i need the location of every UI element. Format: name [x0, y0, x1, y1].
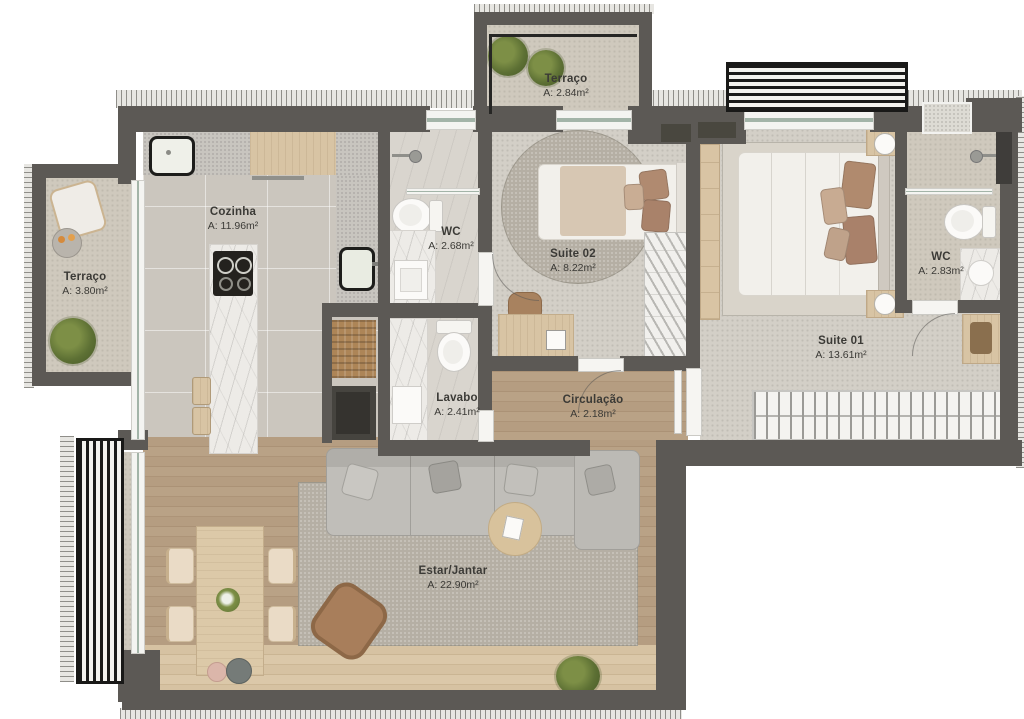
island-stool — [192, 407, 211, 435]
laptop — [546, 330, 566, 350]
cooktop-burner — [219, 277, 233, 291]
luggage — [970, 322, 992, 354]
cooktop-burner — [217, 257, 234, 274]
room-name: WC — [428, 226, 474, 240]
room-label-lavabo: Lavabo A: 2.41m² — [434, 392, 480, 418]
shower-head — [970, 150, 983, 163]
room-area: A: 3.80m² — [62, 285, 108, 297]
sofa-pillow — [583, 463, 616, 496]
pouf — [226, 658, 252, 684]
wall — [322, 303, 332, 443]
wall — [895, 300, 912, 313]
terrace-railing — [489, 34, 637, 37]
wall — [656, 440, 686, 710]
shower-glass — [905, 188, 993, 195]
pouf — [207, 662, 227, 682]
headboard — [878, 152, 890, 298]
entry-niche — [661, 124, 691, 142]
room-label-wc-suite02: WC A: 2.68m² — [428, 226, 474, 252]
dining-chair — [166, 548, 194, 584]
shower-glass — [406, 188, 480, 195]
toilet-tank — [982, 206, 996, 238]
cooktop-burner — [235, 257, 252, 274]
coffee-cup — [68, 234, 75, 241]
room-label-cozinha: Cozinha A: 11.96m² — [208, 206, 259, 232]
room-name: Lavabo — [434, 392, 480, 406]
exterior-hatch — [60, 436, 74, 682]
pergola-louver — [726, 62, 908, 112]
wall — [122, 690, 680, 710]
room-area: A: 2.41m² — [434, 406, 480, 418]
wall — [378, 303, 490, 318]
terrace-plant — [50, 318, 96, 364]
wall — [32, 164, 46, 386]
dining-chair — [268, 606, 296, 642]
toilet-bowl-inner — [443, 340, 463, 364]
side-louver-panel — [76, 438, 124, 684]
table-lamp — [874, 133, 896, 155]
wicker-cabinet — [330, 320, 376, 378]
wall — [662, 440, 1022, 466]
sliding-glass-door — [131, 452, 145, 654]
cooktop-burner — [237, 277, 251, 291]
wall — [686, 140, 700, 374]
shower-head — [409, 150, 422, 163]
terrace-plant — [488, 36, 528, 76]
wall — [378, 128, 390, 443]
wall — [486, 356, 578, 371]
island-stool — [192, 377, 211, 405]
table-lamp — [874, 293, 896, 315]
entry-niche — [698, 122, 736, 138]
wall-niche — [996, 132, 1012, 184]
room-name: WC — [918, 251, 964, 265]
window — [426, 110, 476, 130]
wall — [895, 127, 907, 312]
kitchen-sink — [149, 136, 195, 176]
lavabo-basin — [392, 386, 422, 424]
room-label-circulacao: Circulação A: 2.18m² — [563, 394, 624, 420]
suite01-wardrobe-panel — [700, 144, 720, 320]
room-label-terraco-top: Terraço A: 2.84m² — [543, 73, 589, 99]
room-name: Suite 01 — [815, 335, 866, 349]
wall-shelf — [252, 176, 304, 180]
room-name: Suite 02 — [550, 248, 596, 262]
wall — [474, 12, 487, 124]
door-leaf — [674, 370, 682, 434]
sliding-glass-door — [131, 180, 145, 440]
bed-pillow — [641, 199, 672, 233]
room-label-suite02: Suite 02 A: 8.22m² — [550, 248, 596, 274]
window — [744, 110, 874, 130]
suite02-wardrobe — [644, 232, 692, 362]
table-flowers — [216, 588, 240, 612]
room-name: Terraço — [543, 73, 589, 87]
wall — [478, 302, 492, 412]
room-area: A: 2.84m² — [543, 87, 589, 99]
door-opening — [478, 410, 494, 442]
room-area: A: 22.90m² — [419, 579, 488, 591]
wall — [378, 440, 590, 456]
room-area: A: 2.18m² — [563, 408, 624, 420]
room-area: A: 2.68m² — [428, 240, 474, 252]
side-table — [52, 228, 82, 258]
bed-throw — [560, 166, 626, 236]
room-name: Cozinha — [208, 206, 259, 220]
sofa-pillow — [503, 463, 539, 497]
room-area: A: 13.61m² — [815, 349, 866, 361]
coffee-cup — [58, 236, 65, 243]
room-label-wc-suite01: WC A: 2.83m² — [918, 251, 964, 277]
toilet-bowl-inner — [399, 204, 422, 226]
sofa-pillow — [428, 460, 463, 495]
toilet-bowl-inner — [951, 210, 974, 232]
door-opening — [686, 368, 702, 436]
floor-plan: Terraço A: 2.84m² Terraço A: 3.80m² Cozi… — [0, 0, 1024, 719]
bed-pillow — [820, 187, 849, 226]
wall — [32, 372, 136, 386]
room-area: A: 2.83m² — [918, 265, 964, 277]
room-label-terraco-left: Terraço A: 3.80m² — [62, 271, 108, 297]
wall — [956, 300, 1004, 313]
bar-sink — [339, 247, 375, 291]
room-label-suite01: Suite 01 A: 13.61m² — [815, 335, 866, 361]
clothes-rail — [752, 390, 1003, 441]
room-label-estar-jantar: Estar/Jantar A: 22.90m² — [419, 565, 488, 591]
kitchen-counter-wood — [250, 128, 336, 175]
room-name: Circulação — [563, 394, 624, 408]
dining-chair — [166, 606, 194, 642]
storage-niche-inner — [336, 392, 370, 434]
vanity-basin-round — [968, 260, 994, 286]
room-area: A: 8.22m² — [550, 262, 596, 274]
wall — [620, 356, 692, 371]
room-area: A: 11.96m² — [208, 220, 259, 232]
room-name: Terraço — [62, 271, 108, 285]
vanity-basin-inner — [400, 268, 422, 292]
wall — [478, 128, 492, 256]
window — [556, 110, 632, 130]
wall — [639, 12, 652, 124]
dining-chair — [268, 548, 296, 584]
wall — [474, 12, 652, 25]
bed-pillow — [623, 183, 644, 210]
room-name: Estar/Jantar — [419, 565, 488, 579]
terrace-railing — [489, 34, 492, 114]
kitchen-sink-drain — [166, 150, 171, 155]
frosted-window — [922, 102, 972, 134]
wall — [32, 164, 136, 178]
